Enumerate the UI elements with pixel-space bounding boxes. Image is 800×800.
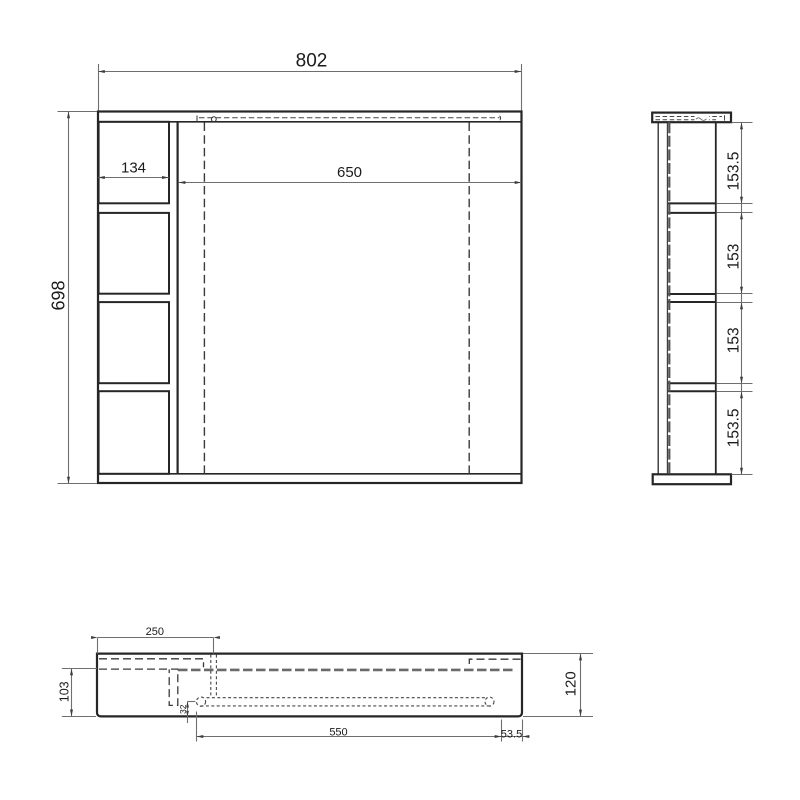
svg-text:103: 103 — [57, 681, 71, 702]
svg-text:153: 153 — [726, 244, 743, 270]
svg-text:153.5: 153.5 — [726, 409, 743, 448]
svg-text:802: 802 — [296, 50, 328, 71]
svg-text:153.5: 153.5 — [726, 152, 743, 191]
svg-text:120: 120 — [562, 671, 579, 696]
svg-text:32: 32 — [178, 704, 188, 714]
svg-text:153: 153 — [726, 327, 743, 353]
svg-text:698: 698 — [49, 280, 69, 310]
svg-text:650: 650 — [337, 164, 362, 181]
svg-text:53.5: 53.5 — [501, 728, 522, 740]
svg-text:134: 134 — [121, 160, 146, 177]
svg-text:250: 250 — [146, 626, 164, 638]
svg-text:550: 550 — [329, 727, 347, 739]
